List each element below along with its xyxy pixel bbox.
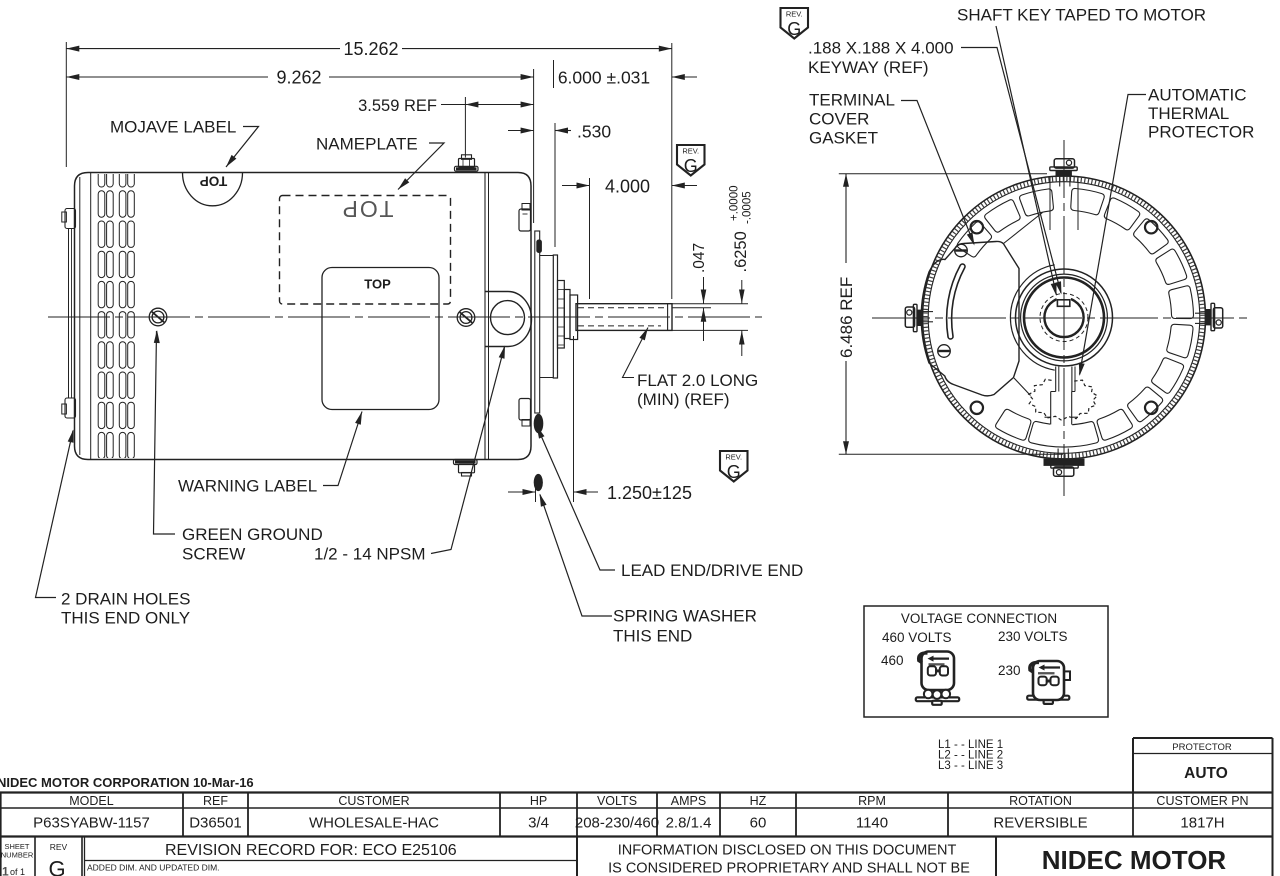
svg-text:230: 230 — [998, 663, 1021, 678]
svg-text:AUTO: AUTO — [1184, 765, 1228, 782]
svg-text:1: 1 — [2, 865, 9, 876]
svg-text:G: G — [787, 19, 801, 39]
svg-text:(MIN) (REF): (MIN) (REF) — [637, 390, 730, 409]
svg-text:REV.: REV. — [725, 453, 742, 462]
svg-text:1817H: 1817H — [1180, 815, 1224, 832]
svg-text:3/4: 3/4 — [528, 815, 549, 832]
svg-text:INFORMATION DISCLOSED ON THIS: INFORMATION DISCLOSED ON THIS DOCUMENT — [618, 843, 957, 859]
svg-text:REVERSIBLE: REVERSIBLE — [993, 815, 1087, 832]
svg-text:HZ: HZ — [750, 794, 767, 808]
svg-text:CUSTOMER: CUSTOMER — [338, 794, 409, 808]
svg-text:of 1: of 1 — [10, 867, 25, 876]
svg-text:REF: REF — [203, 794, 228, 808]
svg-text:NIDEC MOTOR: NIDEC MOTOR — [1042, 845, 1227, 875]
svg-text:1/2 - 14 NPSM: 1/2 - 14 NPSM — [314, 545, 426, 564]
svg-text:TERMINAL: TERMINAL — [809, 91, 895, 110]
svg-text:WHOLESALE-HAC: WHOLESALE-HAC — [309, 815, 439, 832]
svg-text:6.486 REF: 6.486 REF — [837, 277, 856, 358]
svg-text:REV: REV — [50, 842, 68, 852]
svg-text:HP: HP — [530, 794, 547, 808]
svg-text:.6250: .6250 — [732, 231, 750, 272]
svg-text:G: G — [684, 156, 698, 176]
svg-text:NUMBER: NUMBER — [1, 851, 34, 860]
svg-text:L3 - - LINE 3: L3 - - LINE 3 — [938, 760, 1003, 772]
svg-text:WARNING LABEL: WARNING LABEL — [178, 477, 317, 496]
svg-text:G: G — [727, 462, 741, 482]
svg-text:AUTOMATIC: AUTOMATIC — [1148, 86, 1247, 105]
svg-text:G: G — [48, 857, 65, 876]
svg-text:THERMAL: THERMAL — [1148, 104, 1229, 123]
svg-text:MOJAVE LABEL: MOJAVE LABEL — [110, 118, 236, 137]
svg-text:AMPS: AMPS — [671, 794, 706, 808]
svg-text:GASKET: GASKET — [809, 129, 878, 148]
svg-text:.047: .047 — [691, 243, 708, 273]
svg-text:460: 460 — [881, 653, 904, 668]
svg-text:CUSTOMER PN: CUSTOMER PN — [1156, 794, 1248, 808]
svg-text:VOLTS: VOLTS — [597, 794, 637, 808]
svg-text:SCREW: SCREW — [182, 545, 245, 564]
svg-text:THIS END ONLY: THIS END ONLY — [61, 609, 190, 628]
svg-text:NIDEC MOTOR CORPORATION 10-Mar: NIDEC MOTOR CORPORATION 10-Mar-16 — [0, 775, 254, 790]
svg-text:PROTECTOR: PROTECTOR — [1148, 123, 1254, 142]
svg-text:.530: .530 — [577, 122, 611, 142]
svg-text:KEYWAY (REF): KEYWAY (REF) — [808, 58, 929, 77]
svg-text:TOP: TOP — [364, 277, 391, 292]
svg-text:VOLTAGE CONNECTION: VOLTAGE CONNECTION — [901, 611, 1057, 626]
svg-text:COVER: COVER — [809, 110, 869, 129]
svg-text:TOP: TOP — [341, 196, 394, 222]
svg-text:460 VOLTS: 460 VOLTS — [882, 630, 952, 645]
svg-text:15.262: 15.262 — [343, 39, 398, 59]
svg-text:4.000: 4.000 — [605, 177, 650, 197]
svg-text:230 VOLTS: 230 VOLTS — [998, 629, 1068, 644]
svg-text:SPRING WASHER: SPRING WASHER — [613, 607, 757, 626]
svg-text:REV.: REV. — [786, 10, 803, 19]
svg-text:ROTATION: ROTATION — [1009, 794, 1072, 808]
svg-text:THIS END: THIS END — [613, 627, 692, 646]
svg-text:NAMEPLATE: NAMEPLATE — [316, 135, 418, 154]
svg-text:.188 X.188 X 4.000: .188 X.188 X 4.000 — [808, 39, 954, 58]
svg-text:REV.: REV. — [682, 147, 699, 156]
svg-text:-.0005: -.0005 — [742, 191, 754, 224]
svg-text:LEAD END/DRIVE END: LEAD END/DRIVE END — [621, 561, 803, 580]
svg-text:REVISION RECORD FOR: ECO E251: REVISION RECORD FOR: ECO E25106 — [165, 842, 457, 859]
svg-text:MODEL: MODEL — [69, 794, 114, 808]
svg-text:208-230/460: 208-230/460 — [575, 815, 659, 832]
svg-text:60: 60 — [750, 815, 767, 832]
svg-text:2 DRAIN HOLES: 2 DRAIN HOLES — [61, 590, 190, 609]
svg-text:IS CONSIDERED PROPRIETARY AND: IS CONSIDERED PROPRIETARY AND SHALL NOT … — [608, 861, 970, 876]
svg-text:TOP: TOP — [200, 174, 228, 189]
svg-text:9.262: 9.262 — [276, 68, 321, 88]
svg-text:3.559 REF: 3.559 REF — [358, 97, 437, 115]
svg-text:D36501: D36501 — [189, 815, 242, 832]
svg-text:+.0000: +.0000 — [729, 186, 741, 222]
svg-text:SHAFT KEY TAPED TO MOTOR: SHAFT KEY TAPED TO MOTOR — [957, 6, 1206, 25]
svg-text:1140: 1140 — [856, 815, 888, 832]
svg-text:ADDED DIM. AND UPDATED DIM.: ADDED DIM. AND UPDATED DIM. — [87, 863, 220, 873]
svg-text:PROTECTOR: PROTECTOR — [1172, 742, 1232, 753]
svg-text:6.000 ±.031: 6.000 ±.031 — [558, 68, 650, 88]
svg-text:GREEN GROUND: GREEN GROUND — [182, 525, 323, 544]
svg-text:P63SYABW-1157: P63SYABW-1157 — [33, 815, 150, 832]
svg-text:RPM: RPM — [858, 794, 886, 808]
svg-text:1.250±125: 1.250±125 — [607, 483, 692, 503]
svg-text:2.8/1.4: 2.8/1.4 — [666, 815, 712, 832]
svg-text:FLAT 2.0 LONG: FLAT 2.0 LONG — [637, 371, 758, 390]
